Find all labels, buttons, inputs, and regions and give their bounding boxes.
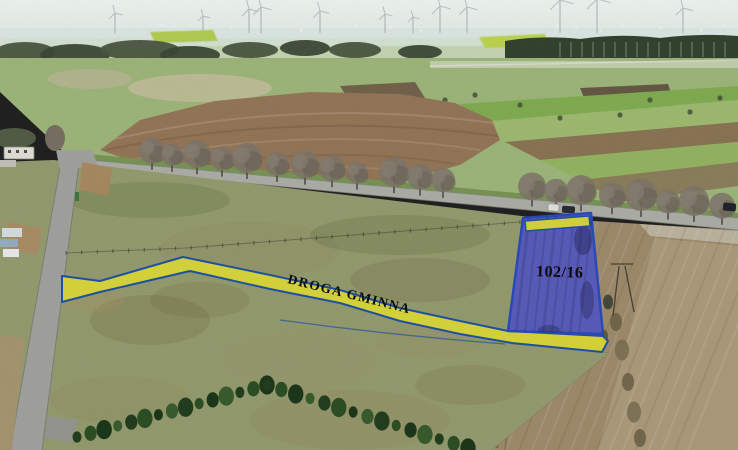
photo-grain (0, 0, 738, 450)
aerial-photo: 102/16 DROGA GMINNA (0, 0, 738, 450)
